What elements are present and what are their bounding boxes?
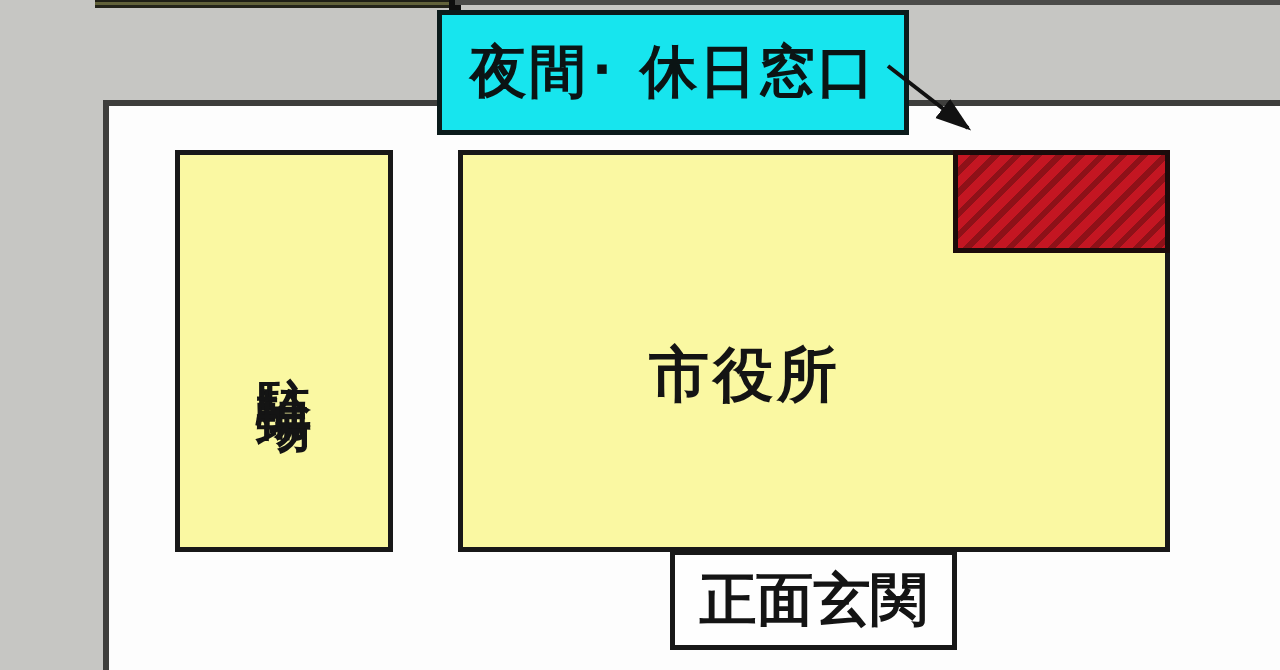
main-entrance-label: 正面玄関 [700,562,928,639]
night-window-callout: 夜間･ 休日窓口 [437,10,909,135]
night-window-callout-label: 夜間･ 休日窓口 [470,34,876,111]
bicycle-parking-block: 駐輪場 [175,150,393,552]
bicycle-parking-label: 駐輪場 [257,333,311,369]
city-hall-label: 市役所 [649,335,841,416]
night-window-hatched-zone [953,150,1170,253]
cropped-top-bar-right [455,0,1280,5]
city-hall-access-map: 駐輪場 市役所 夜間･ 休日窓口 正面玄関 [0,0,1280,670]
road-area-left [0,0,103,670]
cropped-top-bar-left [95,0,455,8]
main-entrance-label-box: 正面玄関 [670,550,957,650]
arrow-icon [858,48,1018,153]
